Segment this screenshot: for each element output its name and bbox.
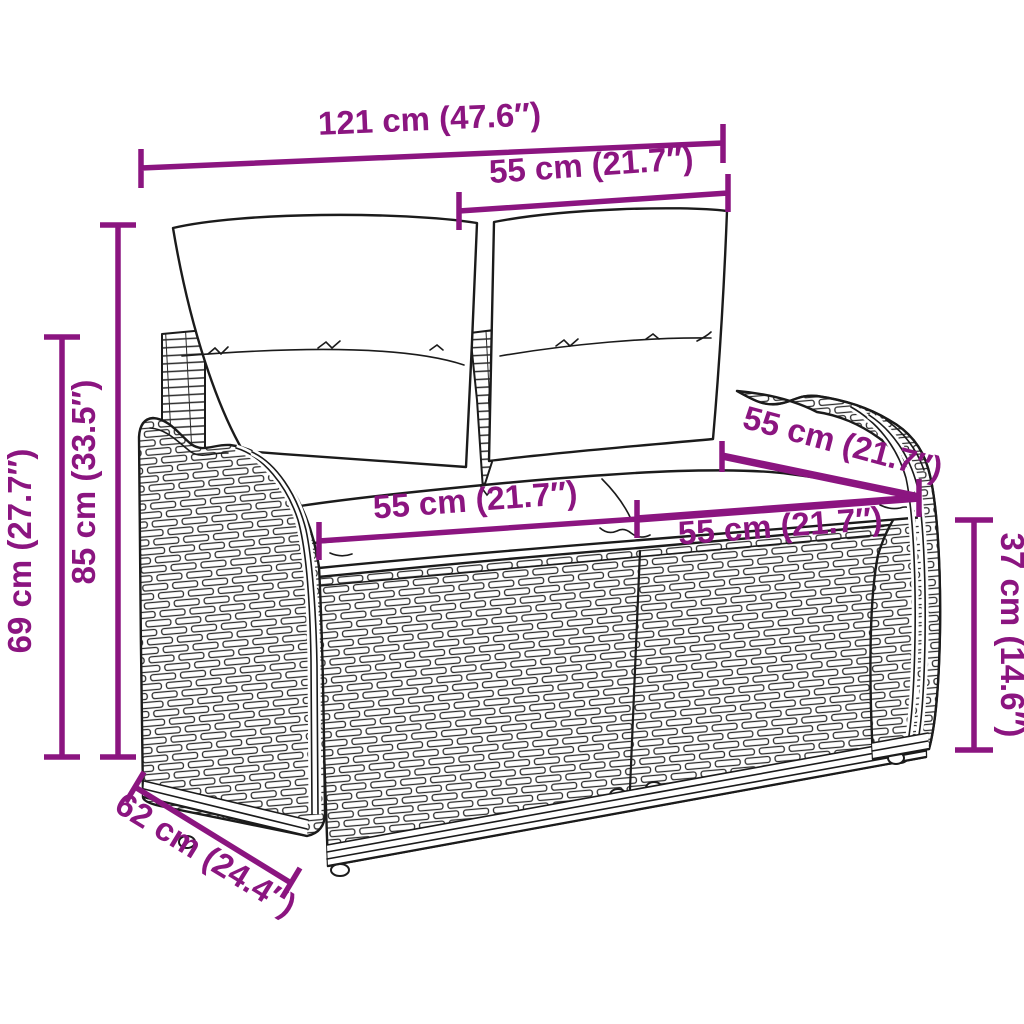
- dim-seat-height-label: 37 cm (14.6″): [994, 533, 1024, 738]
- dim-total-width-label: 121 cm (47.6″): [317, 95, 542, 142]
- dim-armrest-height-label: 69 cm (27.7″): [1, 449, 38, 654]
- back-cushion-left: [173, 215, 477, 467]
- back-cushion-right: [489, 208, 727, 461]
- dim-seat-height: 37 cm (14.6″): [955, 520, 1024, 750]
- dim-total-height: 85 cm (33.5″): [65, 225, 136, 757]
- dim-backrest-width-top-label: 55 cm (21.7″): [488, 139, 695, 190]
- armrest-left: [139, 418, 325, 848]
- diagram-canvas: 121 cm (47.6″) 55 cm (21.7″) 85 cm (33.5…: [0, 0, 1024, 1024]
- bench-drawing: [139, 208, 940, 876]
- bench-dimension-diagram: 121 cm (47.6″) 55 cm (21.7″) 85 cm (33.5…: [0, 0, 1024, 1024]
- base-panel: [318, 522, 926, 876]
- dim-total-height-label: 85 cm (33.5″): [65, 380, 102, 585]
